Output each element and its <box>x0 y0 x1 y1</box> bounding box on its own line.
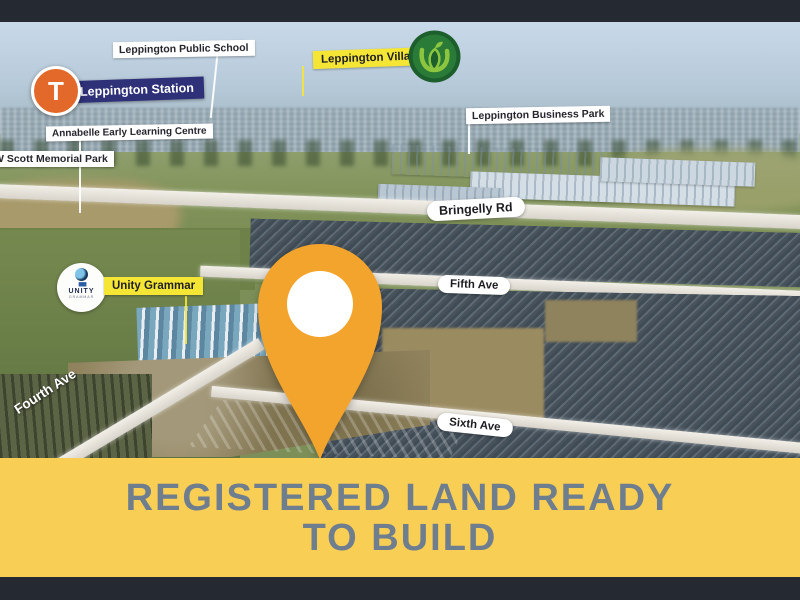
unity-books-glyph: ■■ <box>78 280 85 288</box>
headline-line-2: TO BUILD <box>303 519 498 557</box>
unity-logo-title: UNITY <box>69 288 95 295</box>
train-t-icon: T <box>31 66 81 116</box>
train-t-letter: T <box>48 76 64 107</box>
woolworths-icon <box>408 30 461 83</box>
location-pin-icon <box>250 240 390 470</box>
connector-line-village <box>302 66 304 96</box>
road-label-fifth: Fifth Ave <box>438 275 511 296</box>
label-public-school: Leppington Public School <box>113 40 255 58</box>
headline-banner: REGISTERED LAND READY TO BUILD <box>0 458 800 577</box>
top-letterbox-bar <box>0 0 800 22</box>
label-memorial-park: W Scott Memorial Park <box>0 151 114 167</box>
connector-line-business-park <box>468 124 470 154</box>
vacant-lot <box>545 300 637 342</box>
unity-grammar-icon: ■■ UNITY GRAMMAR <box>57 263 106 312</box>
bottom-letterbox-bar <box>0 577 800 600</box>
unity-logo-subtitle: GRAMMAR <box>69 295 94 299</box>
label-annabelle: Annabelle Early Learning Centre <box>46 124 213 142</box>
connector-line-unity <box>185 296 187 344</box>
label-unity-grammar: Unity Grammar <box>104 277 203 295</box>
label-business-park: Leppington Business Park <box>466 106 611 125</box>
real-estate-ad-image: Leppington Public School Leppington Stat… <box>0 0 800 600</box>
headline-line-1: REGISTERED LAND READY <box>126 479 675 517</box>
